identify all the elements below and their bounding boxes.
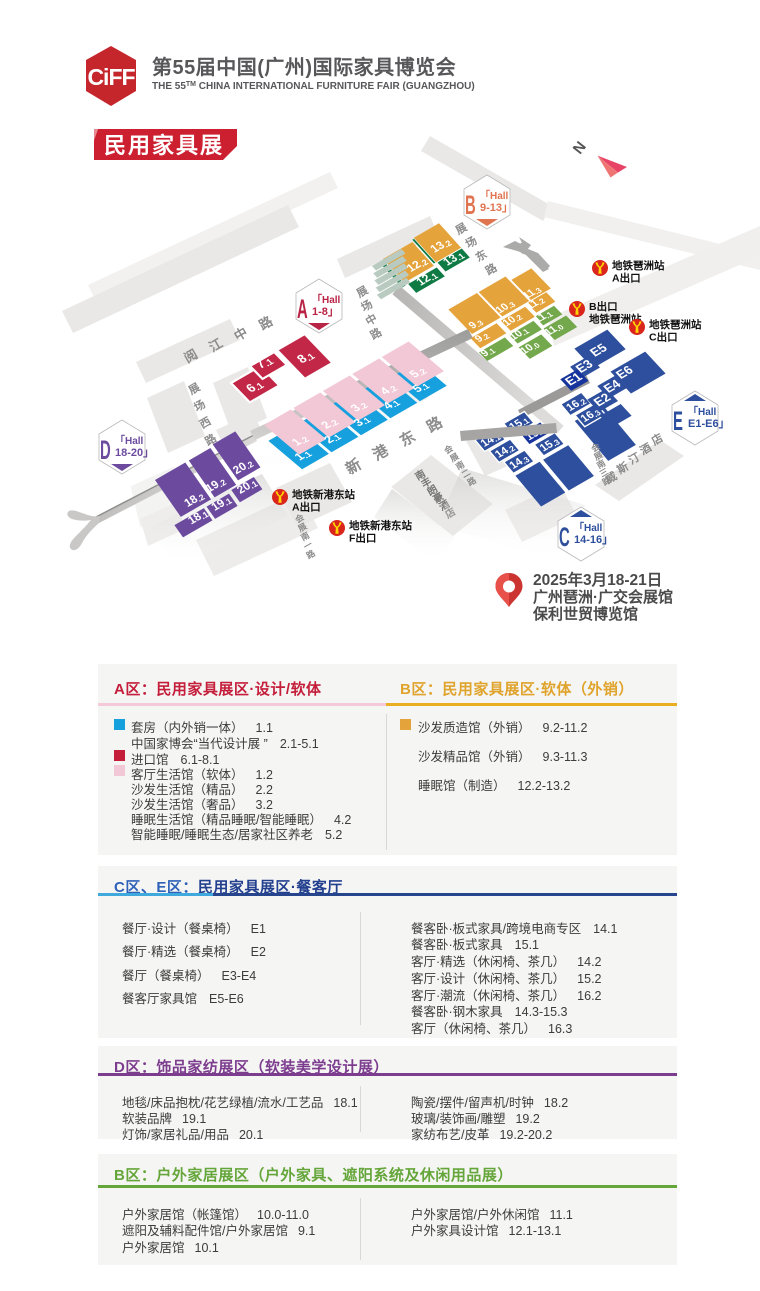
svg-text:保利世贸博览馆: 保利世贸博览馆 [532,605,638,623]
svg-text:「Hall: 「Hall [480,189,509,202]
svg-text:A: A [297,293,308,324]
svg-text:18-20」: 18-20」 [115,447,154,459]
svg-text:「Hall: 「Hall [115,434,144,447]
svg-text:F出口: F出口 [349,532,376,545]
svg-text:路: 路 [423,413,446,437]
svg-text:地铁琶洲站: 地铁琶洲站 [612,259,665,272]
svg-text:B: B [465,189,476,220]
svg-text:「Hall: 「Hall [688,405,717,418]
svg-text:广州琶洲·广交会展馆: 广州琶洲·广交会展馆 [533,588,673,606]
svg-text:地铁新港东站: 地铁新港东站 [292,488,355,501]
svg-text:路: 路 [256,313,276,333]
svg-text:展: 展 [452,220,470,238]
svg-text:地铁琶洲站: 地铁琶洲站 [649,318,702,331]
svg-text:A出口: A出口 [292,501,321,514]
svg-text:港: 港 [369,441,392,465]
svg-text:E1-E6」: E1-E6」 [688,418,730,430]
svg-text:路: 路 [483,260,500,278]
svg-text:「Hall: 「Hall [574,521,603,534]
svg-text:2025年3月18-21日: 2025年3月18-21日 [533,570,662,589]
svg-text:场: 场 [463,233,480,251]
svg-text:14-16」: 14-16」 [574,534,613,546]
svg-text:地铁新港东站: 地铁新港东站 [349,519,412,532]
svg-text:C: C [559,521,570,552]
svg-text:D: D [100,434,111,465]
svg-text:E: E [673,405,683,436]
svg-text:C出口: C出口 [649,331,678,344]
svg-text:9-13」: 9-13」 [480,202,513,214]
svg-text:新: 新 [342,455,364,478]
svg-text:B出口: B出口 [589,300,618,313]
svg-text:1-8」: 1-8」 [312,306,339,318]
svg-text:A出口: A出口 [612,272,641,285]
svg-text:东: 东 [473,247,490,265]
svg-text:东: 东 [396,427,418,450]
svg-text:N: N [570,138,590,157]
svg-text:CiFF: CiFF [87,64,135,90]
svg-text:「Hall: 「Hall [312,293,341,306]
